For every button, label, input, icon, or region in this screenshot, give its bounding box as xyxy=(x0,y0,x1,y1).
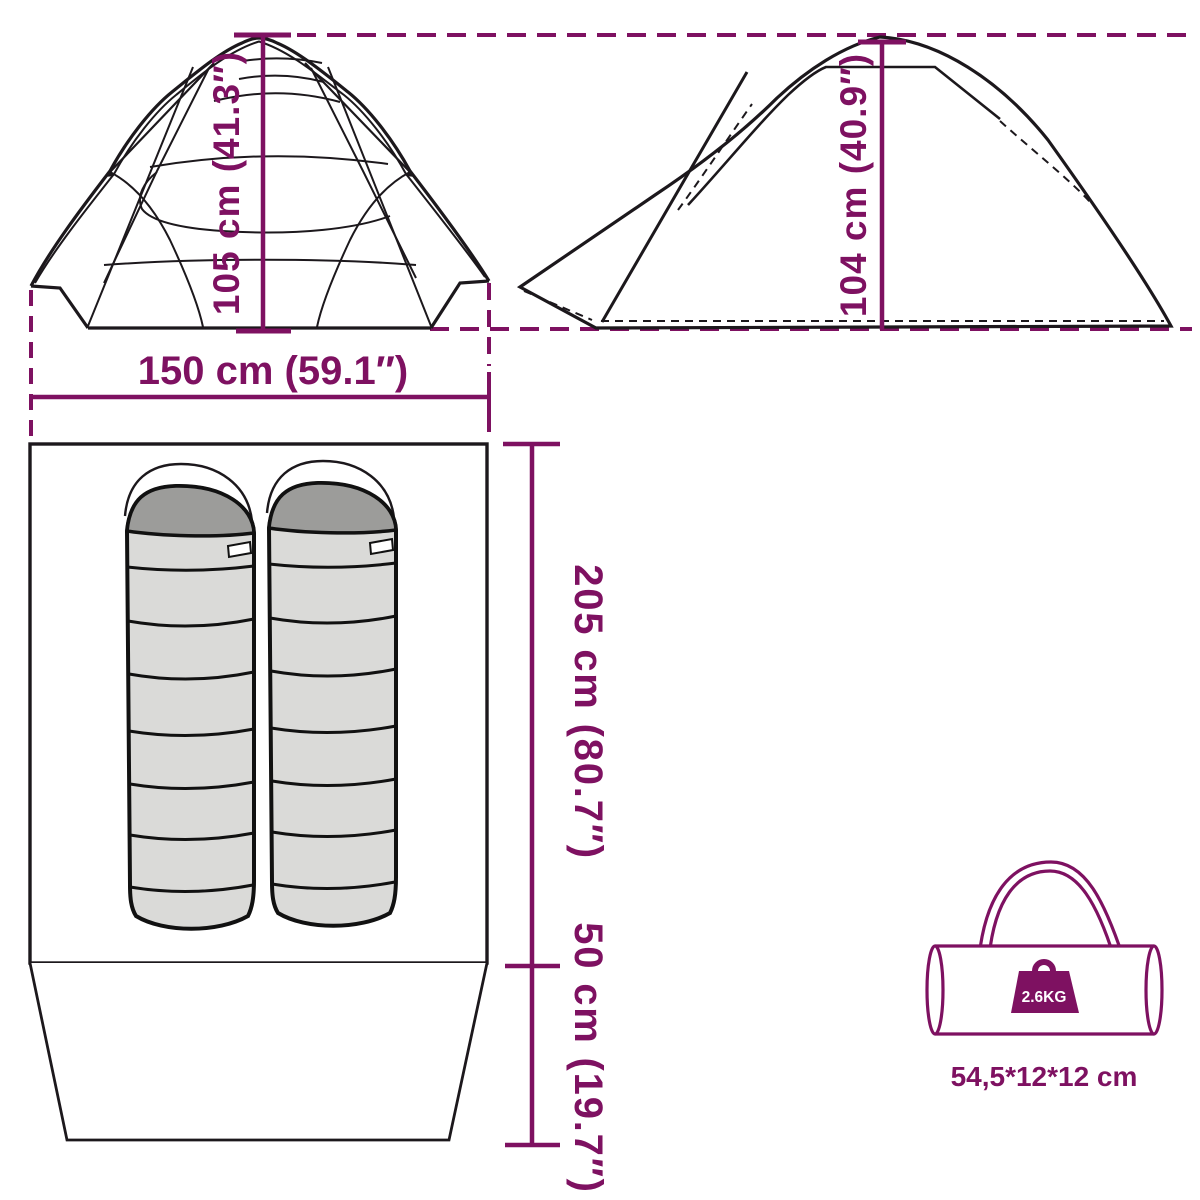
svg-text:2.6KG: 2.6KG xyxy=(1022,989,1067,1006)
svg-text:150 cm (59.1″): 150 cm (59.1″) xyxy=(138,349,408,393)
svg-text:54,5*12*12 cm: 54,5*12*12 cm xyxy=(951,1061,1138,1092)
svg-text:50 cm (19.7″): 50 cm (19.7″) xyxy=(566,922,610,1194)
svg-text:205 cm (80.7″): 205 cm (80.7″) xyxy=(566,564,610,860)
svg-text:105 cm (41.3″): 105 cm (41.3″) xyxy=(206,51,247,315)
svg-text:104 cm (40.9″): 104 cm (40.9″) xyxy=(833,53,874,317)
